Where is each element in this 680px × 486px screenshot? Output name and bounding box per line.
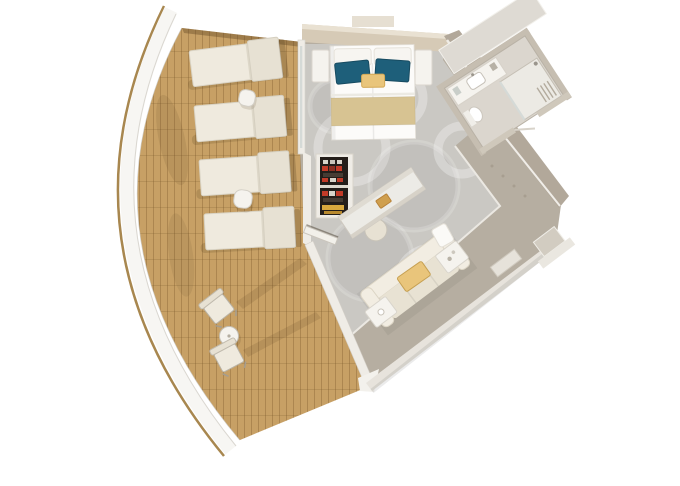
window-glass (300, 46, 302, 148)
lounger-bed (189, 44, 253, 87)
bistro-table-center (227, 334, 230, 337)
minibar-item-red (336, 191, 343, 196)
minibar-item-red (322, 166, 328, 171)
minibar-item-yellow (322, 205, 344, 210)
lounger-bed (204, 211, 266, 250)
minibar-item-red (336, 166, 342, 171)
minibar-item (329, 166, 335, 171)
spot-light (502, 175, 505, 178)
floor-plan-stage (0, 0, 680, 486)
minibar-item-red (337, 178, 343, 182)
minibar-item (323, 173, 343, 177)
table-top (233, 189, 253, 209)
deck-lounger-4 (199, 206, 302, 253)
minibar-divider (320, 185, 348, 188)
pillow-accent-gold (362, 74, 385, 87)
minibar-item (330, 160, 335, 164)
minibar-items-upper (322, 160, 343, 182)
minibar-shelf (316, 154, 353, 218)
lounger-backrest (263, 206, 296, 249)
headboard-wall-step (352, 16, 394, 27)
minibar-item (329, 191, 335, 196)
minibar-item (323, 160, 328, 164)
spot-light (491, 165, 494, 168)
minibar-item (330, 178, 336, 182)
suite-floor-plan (0, 0, 680, 486)
bed-runner (331, 97, 415, 126)
minibar-item (324, 211, 342, 214)
lounger-backrest (247, 37, 283, 81)
minibar-item (337, 160, 342, 164)
nightstand-right (415, 50, 432, 85)
lounger-bed (199, 156, 261, 196)
spot-light (524, 195, 527, 198)
minibar-item-red (322, 178, 328, 182)
lounger-backrest (258, 151, 292, 194)
nightstand-left (312, 50, 329, 82)
minibar-item-red (322, 191, 328, 196)
bed (330, 45, 416, 140)
minibar-item (323, 198, 343, 202)
spot-light (513, 185, 516, 188)
lounger-backrest (253, 95, 287, 139)
